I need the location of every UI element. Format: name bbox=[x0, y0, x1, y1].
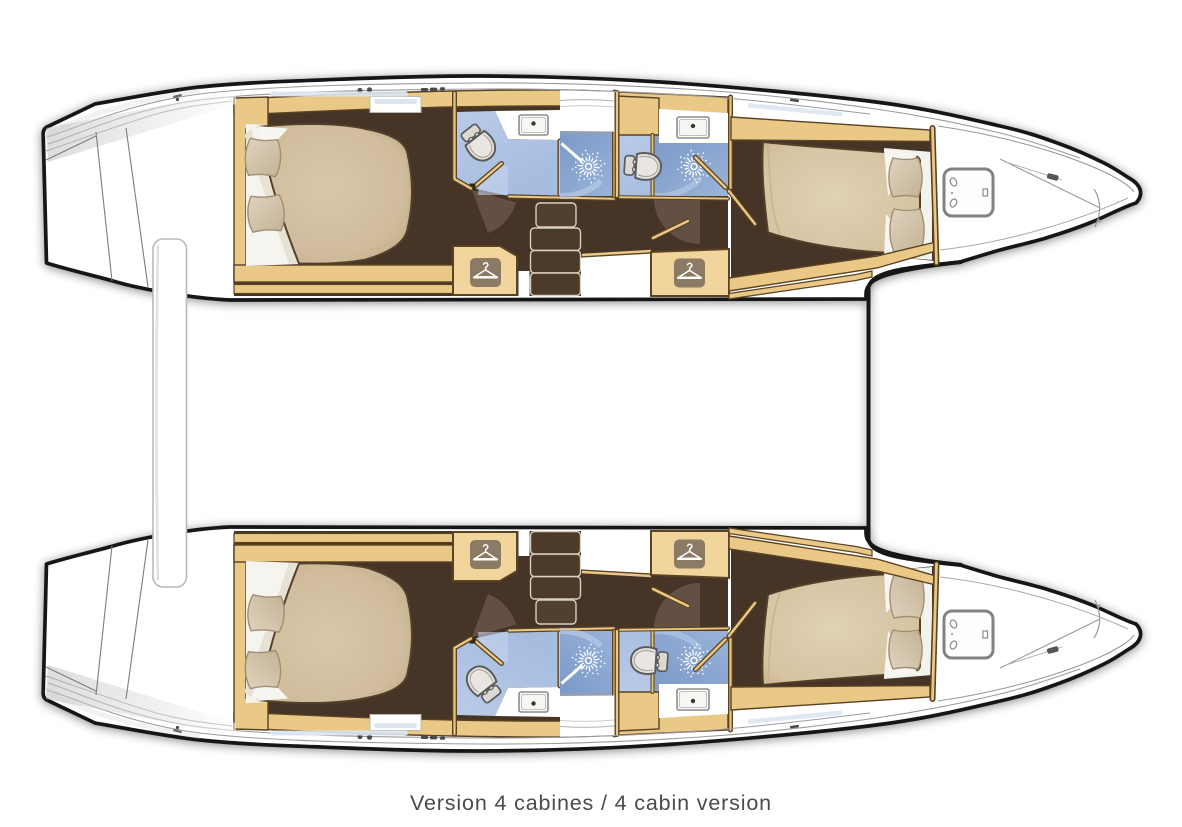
svg-text:Version 4 cabines / 4 cabin ve: Version 4 cabines / 4 cabin version bbox=[410, 791, 772, 815]
